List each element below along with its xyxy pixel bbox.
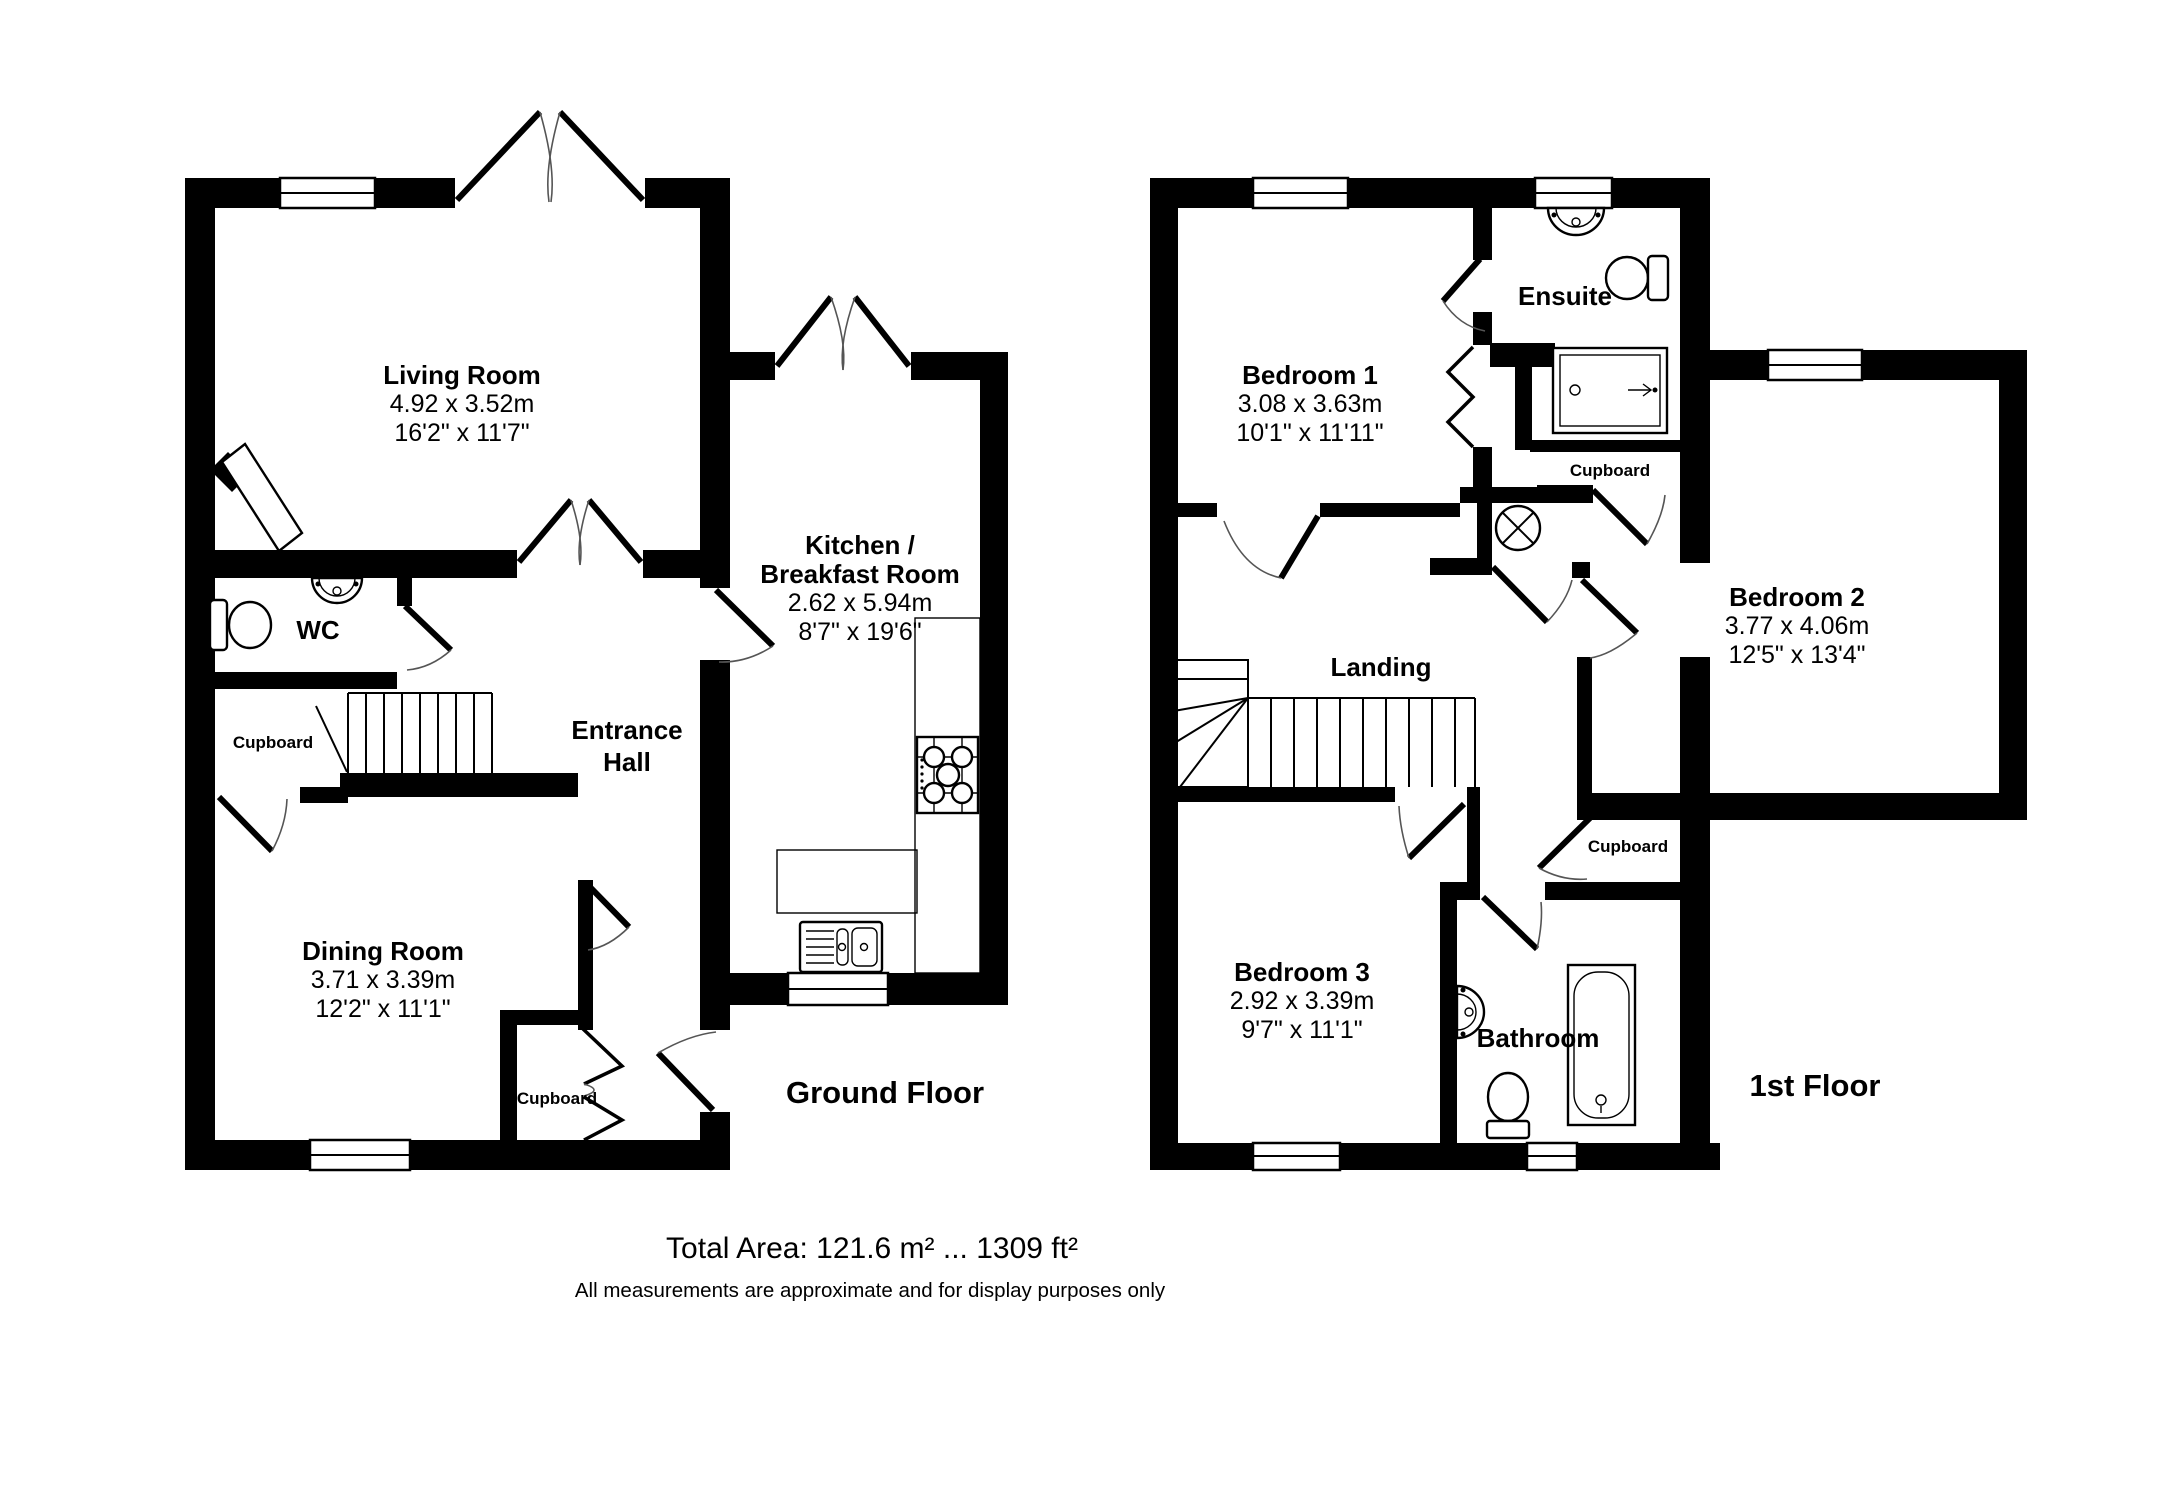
floor-title: Ground Floor xyxy=(786,1076,984,1110)
label-landing: Landing xyxy=(1330,653,1431,682)
room-size-imperial: 12'2" x 11'1" xyxy=(302,995,464,1024)
window-living-room xyxy=(280,178,375,208)
ceiling-light-icon xyxy=(1496,506,1540,550)
label-living-room: Living Room 4.92 x 3.52m 16'2" x 11'7" xyxy=(383,361,540,448)
label-cupboard-understairs: Cupboard xyxy=(233,733,313,752)
ensuite-toilet-icon xyxy=(1606,256,1668,300)
kitchen-sink-icon xyxy=(800,922,882,972)
ensuite-sink-icon xyxy=(1548,208,1604,235)
bathroom-toilet-icon xyxy=(1487,1073,1529,1138)
room-size-imperial: 10'1" x 11'11" xyxy=(1236,419,1383,448)
room-name: Dining Room xyxy=(302,937,464,966)
label-cupboard-landing: Cupboard xyxy=(1588,837,1668,856)
room-name: Bedroom 3 xyxy=(1230,958,1375,987)
shower-icon xyxy=(1553,348,1667,433)
room-size-metric: 3.77 x 4.06m xyxy=(1725,612,1870,641)
room-name: Cupboard xyxy=(1588,837,1668,856)
label-ensuite: Ensuite xyxy=(1518,282,1612,311)
total-area-text: Total Area: 121.6 m² ... 1309 ft² xyxy=(666,1232,1078,1266)
label-entrance-hall: Entrance Hall xyxy=(571,714,682,778)
wc-sink-icon xyxy=(312,578,362,603)
room-name: Living Room xyxy=(383,361,540,390)
label-bedroom2: Bedroom 2 3.77 x 4.06m 12'5" x 13'4" xyxy=(1725,583,1870,670)
ground-floor-stairs xyxy=(316,693,492,773)
room-name: WC xyxy=(296,616,339,645)
room-size-imperial: 16'2" x 11'7" xyxy=(383,419,540,448)
label-bedroom1: Bedroom 1 3.08 x 3.63m 10'1" x 11'11" xyxy=(1236,361,1383,448)
label-cupboard-hall: Cupboard xyxy=(517,1089,597,1108)
room-size-metric: 2.92 x 3.39m xyxy=(1230,987,1375,1016)
room-size-imperial: 9'7" x 11'1" xyxy=(1230,1016,1375,1045)
label-wc: WC xyxy=(296,616,339,645)
window-bedroom2 xyxy=(1768,350,1862,380)
room-name: Cupboard xyxy=(517,1089,597,1108)
room-name: Bedroom 2 xyxy=(1725,583,1870,612)
label-ground-floor: Ground Floor xyxy=(786,1076,984,1110)
label-first-floor: 1st Floor xyxy=(1750,1069,1881,1103)
room-size-imperial: 12'5" x 13'4" xyxy=(1725,641,1870,670)
room-name: Ensuite xyxy=(1518,282,1612,311)
window-bathroom xyxy=(1527,1143,1577,1170)
room-name: Cupboard xyxy=(1570,461,1650,480)
floorplan-page: Living Room 4.92 x 3.52m 16'2" x 11'7" K… xyxy=(0,0,2177,1497)
room-size-metric: 2.62 x 5.94m xyxy=(760,589,959,618)
room-name: Bedroom 1 xyxy=(1236,361,1383,390)
room-size-metric: 4.92 x 3.52m xyxy=(383,390,540,419)
room-name: Bathroom xyxy=(1477,1024,1600,1053)
room-name: Entrance xyxy=(571,714,682,746)
window-kitchen xyxy=(788,973,888,1005)
window-ensuite xyxy=(1535,178,1612,208)
room-name: Landing xyxy=(1330,653,1431,682)
window-bedroom3 xyxy=(1253,1143,1340,1170)
room-size-metric: 3.71 x 3.39m xyxy=(302,966,464,995)
wc-toilet-icon xyxy=(210,600,271,650)
window-dining-room xyxy=(310,1140,410,1170)
label-bathroom: Bathroom xyxy=(1477,1024,1600,1053)
room-name: Hall xyxy=(571,746,682,778)
label-dining-room: Dining Room 3.71 x 3.39m 12'2" x 11'1" xyxy=(302,937,464,1024)
room-name: Breakfast Room xyxy=(760,560,959,589)
window-bedroom1 xyxy=(1253,178,1348,208)
floorplan-drawing xyxy=(0,0,2177,1497)
fireplace xyxy=(210,444,302,551)
label-kitchen: Kitchen / Breakfast Room 2.62 x 5.94m 8'… xyxy=(760,531,959,647)
kitchen-hob-icon xyxy=(917,737,978,813)
room-name: Cupboard xyxy=(233,733,313,752)
disclaimer-text: All measurements are approximate and for… xyxy=(575,1279,1165,1303)
room-size-imperial: 8'7" x 19'6" xyxy=(760,618,959,647)
room-name: Kitchen / xyxy=(760,531,959,560)
floor-title: 1st Floor xyxy=(1750,1069,1881,1103)
label-cupboard-top: Cupboard xyxy=(1570,461,1650,480)
room-size-metric: 3.08 x 3.63m xyxy=(1236,390,1383,419)
label-bedroom3: Bedroom 3 2.92 x 3.39m 9'7" x 11'1" xyxy=(1230,958,1375,1045)
